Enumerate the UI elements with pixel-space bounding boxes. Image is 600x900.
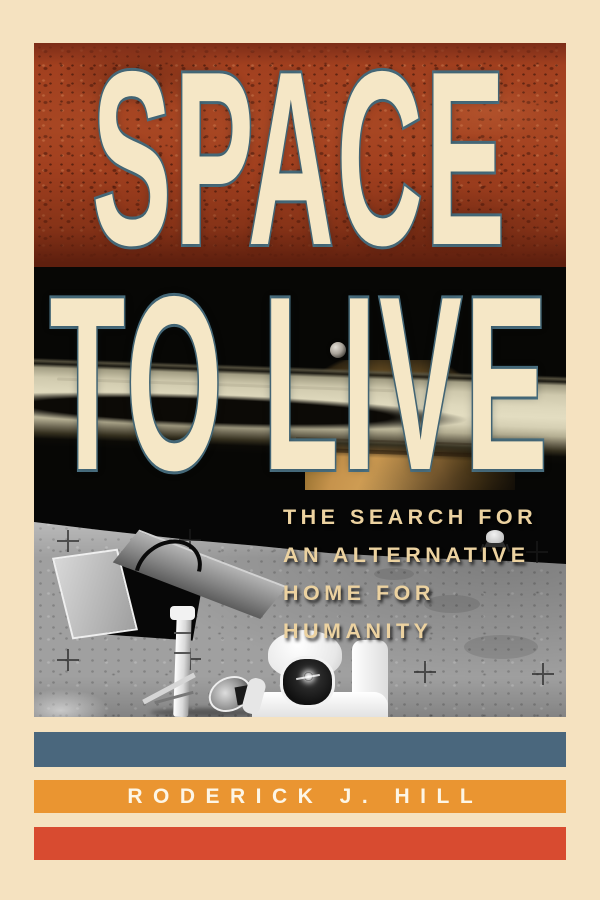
mars-photo-panel: SPACE [34,43,566,267]
subtitle: THE SEARCH FOR AN ALTERNATIVE HOME FOR H… [283,498,537,650]
mast-band [174,652,191,654]
mast-collar [170,606,195,620]
subtitle-line: HOME FOR [283,574,537,612]
subtitle-line: HUMANITY [283,612,537,650]
fiducial-cross [414,661,436,683]
decorative-stripe-blue [34,732,566,767]
title-line-1: SPACE [36,43,564,267]
moon-photo-panel: THE SEARCH FOR AN ALTERNATIVE HOME FOR H… [34,490,566,717]
subtitle-line: THE SEARCH FOR [283,498,537,536]
book-cover: { "cover": { "photos": { "top": "mars-su… [0,0,600,900]
mast-band [174,632,191,634]
author-name: RODERICK J. HILL [117,785,483,809]
author-stripe: RODERICK J. HILL [34,780,566,813]
decorative-stripe-red [34,827,566,860]
fiducial-cross [57,649,79,671]
visor-glint [304,672,313,681]
title-line-2: TO LIVE [34,267,566,490]
subtitle-line: AN ALTERNATIVE [283,536,537,574]
fiducial-cross [57,530,79,552]
saturn-photo-panel: TO LIVE [34,267,566,490]
astronaut-visor [280,656,335,708]
fiducial-cross [532,663,554,685]
